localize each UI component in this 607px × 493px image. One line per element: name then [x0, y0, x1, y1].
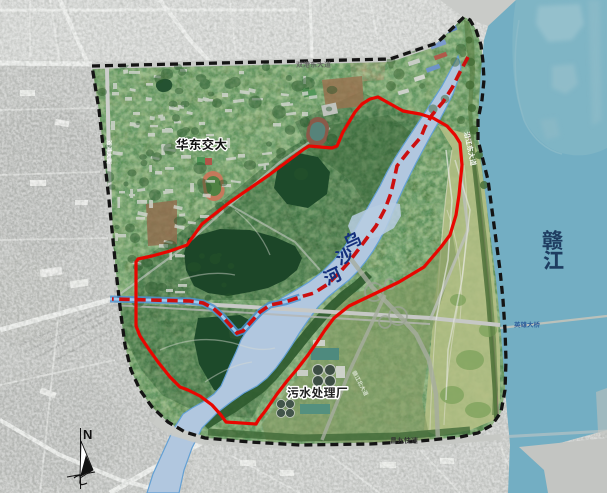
svg-text:N: N — [83, 427, 92, 442]
